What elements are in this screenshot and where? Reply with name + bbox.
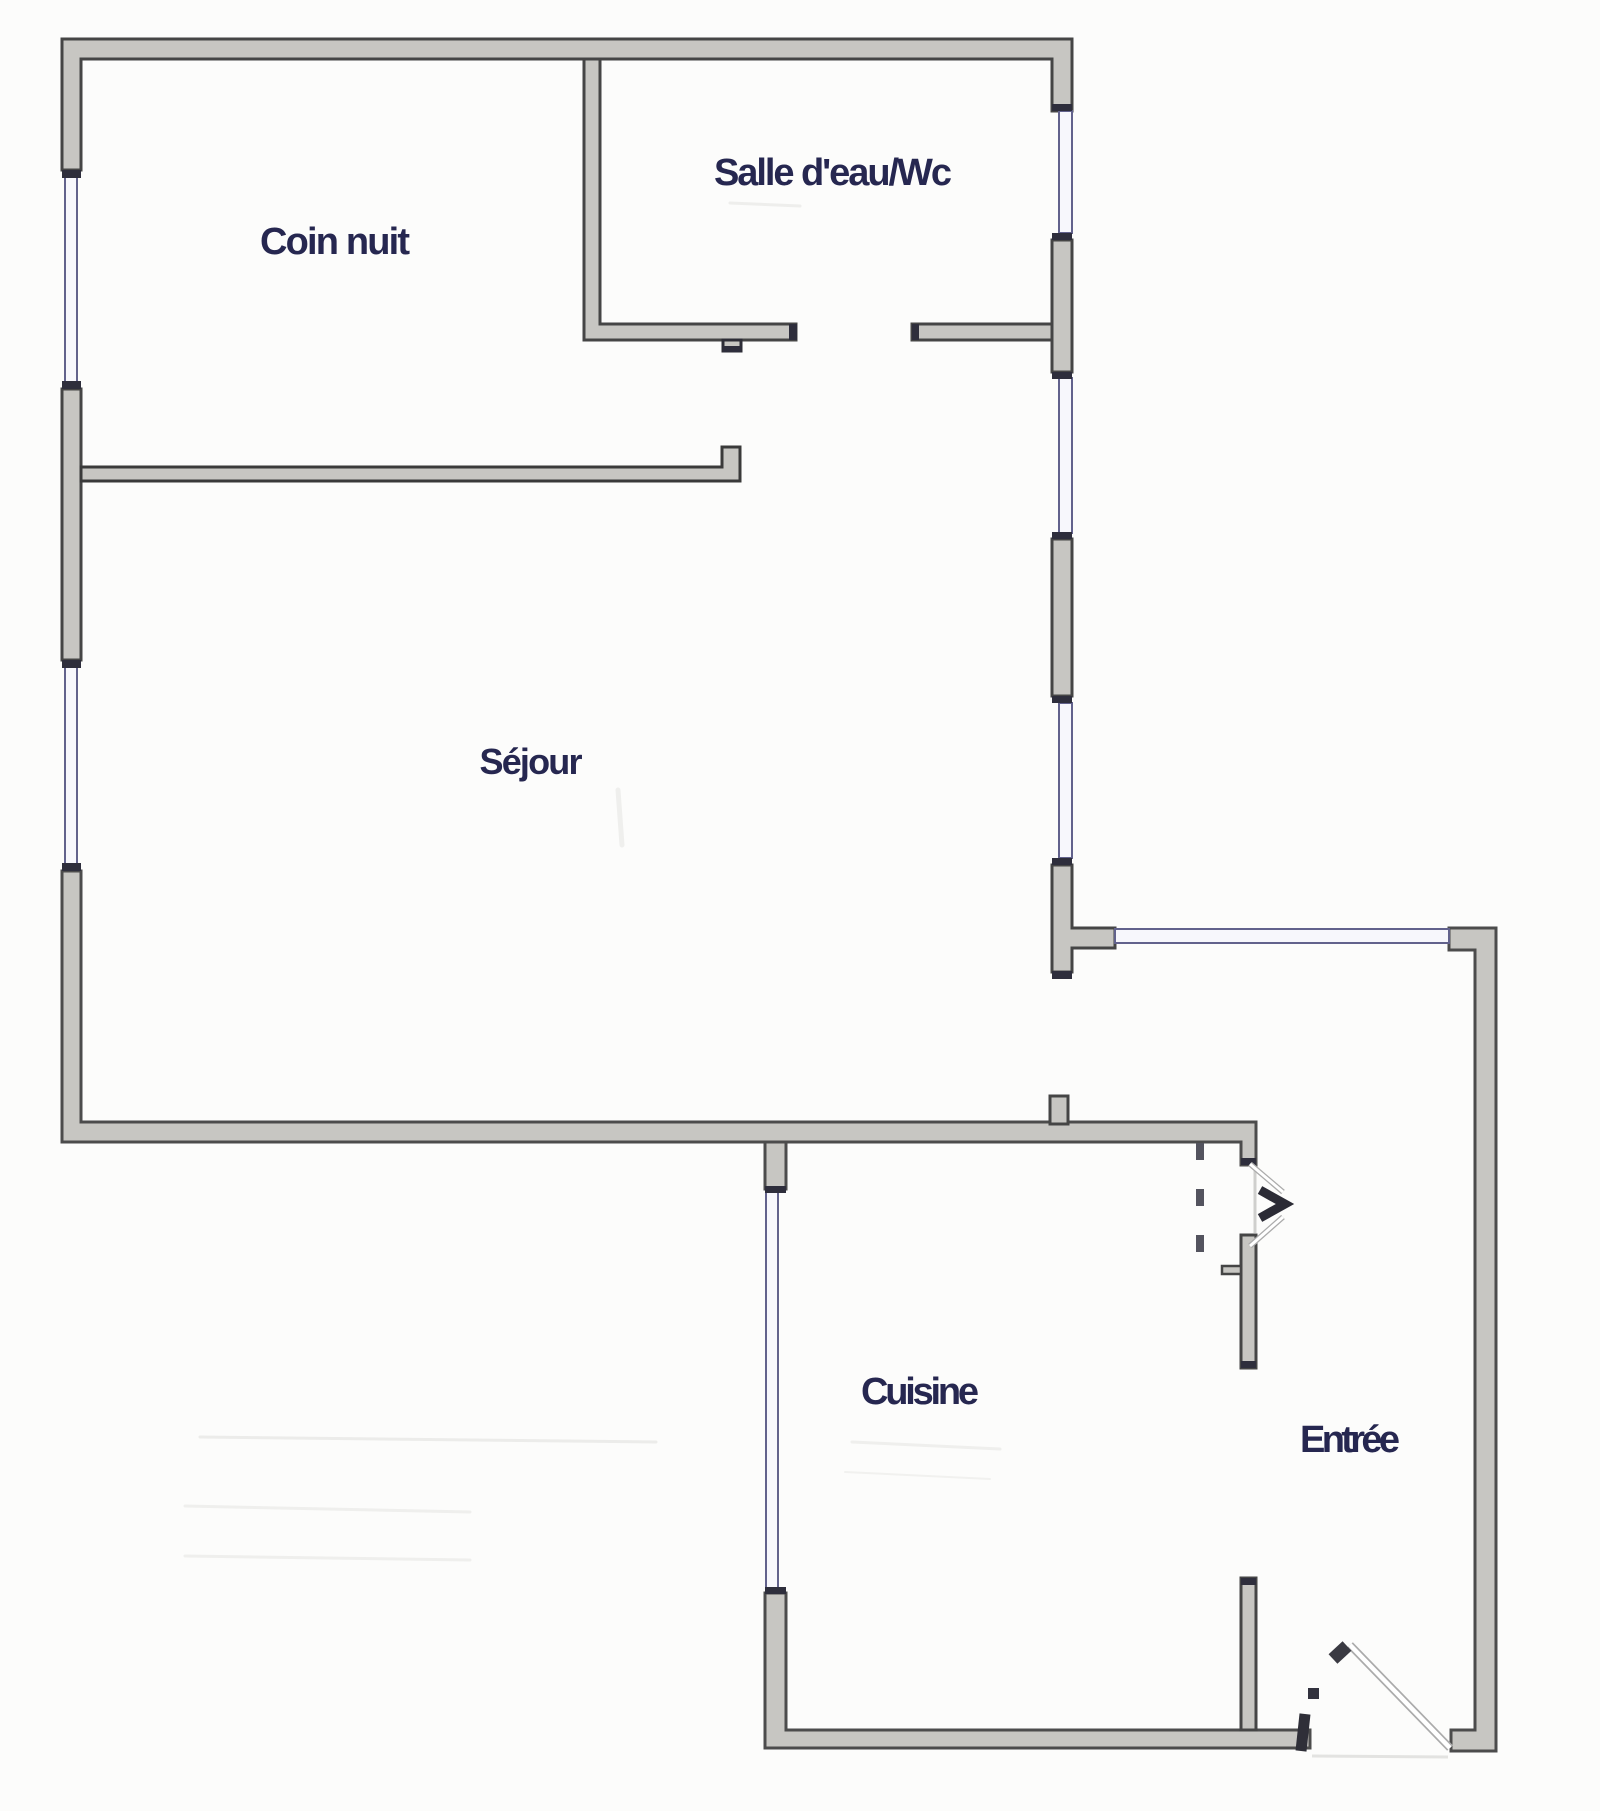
svg-text:Cuisine: Cuisine bbox=[861, 1371, 979, 1413]
svg-text:Entrée: Entrée bbox=[1300, 1419, 1400, 1461]
svg-text:Séjour: Séjour bbox=[480, 741, 583, 782]
svg-text:Coin nuit: Coin nuit bbox=[260, 221, 410, 263]
svg-text:Salle d'eau/Wc: Salle d'eau/Wc bbox=[714, 152, 952, 194]
